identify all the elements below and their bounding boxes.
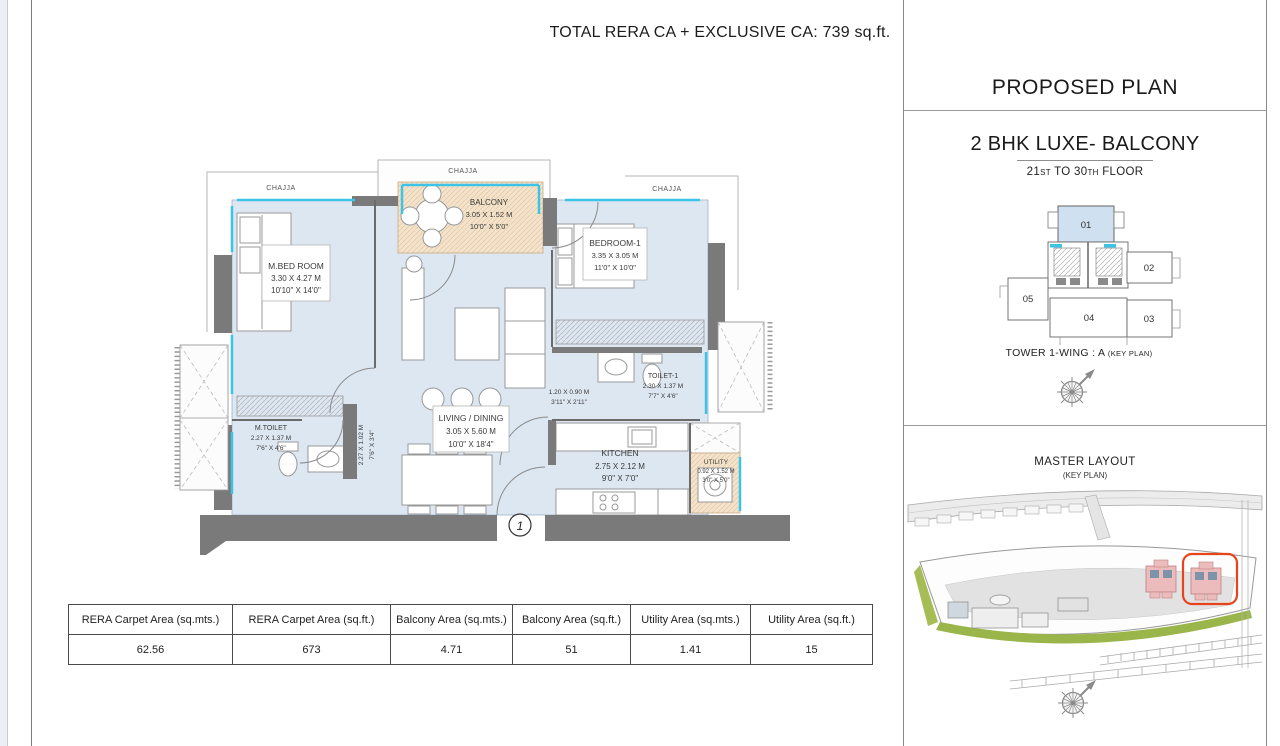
passage-dim: 1.20 X 0.90 M (549, 389, 589, 396)
room-dim: 3.05 X 5.60 M (446, 427, 496, 436)
room-dim: 3.35 X 3.05 M (592, 251, 639, 260)
key-plan: 01 02 03 04 05 (1000, 206, 1180, 345)
room-dim: 10'0" X 18'4" (448, 440, 493, 449)
room-label-balcony: BALCONY (470, 198, 509, 207)
room-dim: 3.05 X 1.52 M (466, 210, 513, 219)
key-plan-unit-label: 01 (1081, 220, 1092, 231)
table-header-cell: RERA Carpet Area (sq.mts.) (69, 605, 233, 635)
room-dim: 7'7" X 4'6" (648, 393, 678, 400)
room-dim: 11'0" X 10'0" (594, 263, 636, 272)
chajja-label: CHAJJA (448, 168, 477, 175)
table-header-cell: RERA Carpet Area (sq.ft.) (233, 605, 391, 635)
room-dim: 2.27 X 1.37 M (251, 435, 291, 442)
passage-vertical-dim: 7'6" X 3'4" (369, 430, 376, 460)
area-table-value-row: 62.56 673 4.71 51 1.41 15 (69, 635, 873, 665)
table-header-cell: Balcony Area (sq.ft.) (513, 605, 631, 635)
floor-plan: CHAJJA CHAJJA CHAJJA M.BED ROOM 3.30 X 4… (177, 160, 790, 555)
room-dim: 9'0" X 7'0" (602, 474, 638, 483)
room-label-bedroom1: BEDROOM-1 (589, 238, 641, 248)
table-value-cell: 51 (513, 635, 631, 665)
room-label-living-dining: LIVING / DINING (439, 413, 504, 423)
passage-vertical-dim: 2.27 X 1.02 M (358, 425, 365, 465)
room-dim: 2.30 X 1.37 M (643, 383, 683, 390)
table-value-cell: 1.41 (631, 635, 751, 665)
area-table: RERA Carpet Area (sq.mts.) RERA Carpet A… (68, 604, 873, 665)
plan-sheet: TOTAL RERA CA + EXCLUSIVE CA: 739 sq.ft.… (0, 0, 1280, 746)
room-dim: 10'0" X 5'0" (470, 222, 509, 231)
room-dim: 7'6" X 4'6" (256, 445, 286, 452)
table-header-cell: Balcony Area (sq.mts.) (391, 605, 513, 635)
room-label-master-bedroom: M.BED ROOM (268, 261, 324, 271)
room-dim: 2.75 X 2.12 M (595, 462, 645, 471)
room-label-kitchen: KITCHEN (601, 448, 638, 458)
wardrobe-master (237, 396, 343, 416)
key-plan-unit-label: 02 (1144, 263, 1155, 274)
compass-icon (1058, 680, 1096, 718)
entry-marker-number: 1 (517, 519, 524, 533)
table-value-cell: 4.71 (391, 635, 513, 665)
chajja-label: CHAJJA (652, 186, 681, 193)
room-dim: 10'10" X 14'0" (271, 286, 321, 295)
key-plan-unit-label: 04 (1084, 313, 1095, 324)
room-label-toilet1: TOILET-1 (648, 373, 678, 380)
table-value-cell: 673 (233, 635, 391, 665)
passage-dim: 3'11" X 2'11" (551, 399, 587, 406)
master-layout-map (908, 491, 1262, 689)
room-label-utility: UTILITY (704, 459, 729, 466)
table-header-cell: Utility Area (sq.mts.) (631, 605, 751, 635)
area-table-header-row: RERA Carpet Area (sq.mts.) RERA Carpet A… (69, 605, 873, 635)
room-dim: 3'0" X 5'0" (702, 478, 729, 484)
table-value-cell: 62.56 (69, 635, 233, 665)
wardrobe-bedroom1 (556, 320, 704, 344)
entry-marker: 1 (509, 514, 531, 536)
room-label-master-toilet: M.TOILET (255, 425, 288, 432)
key-plan-unit-label: 05 (1023, 294, 1034, 305)
table-value-cell: 15 (751, 635, 873, 665)
key-plan-unit-label: 03 (1144, 314, 1155, 325)
chajja-label: CHAJJA (266, 185, 295, 192)
compass-icon (1057, 369, 1095, 407)
room-dim: 3.30 X 4.27 M (271, 274, 321, 283)
room-dim: 0.92 X 1.52 M (697, 469, 734, 475)
table-header-cell: Utility Area (sq.ft.) (751, 605, 873, 635)
